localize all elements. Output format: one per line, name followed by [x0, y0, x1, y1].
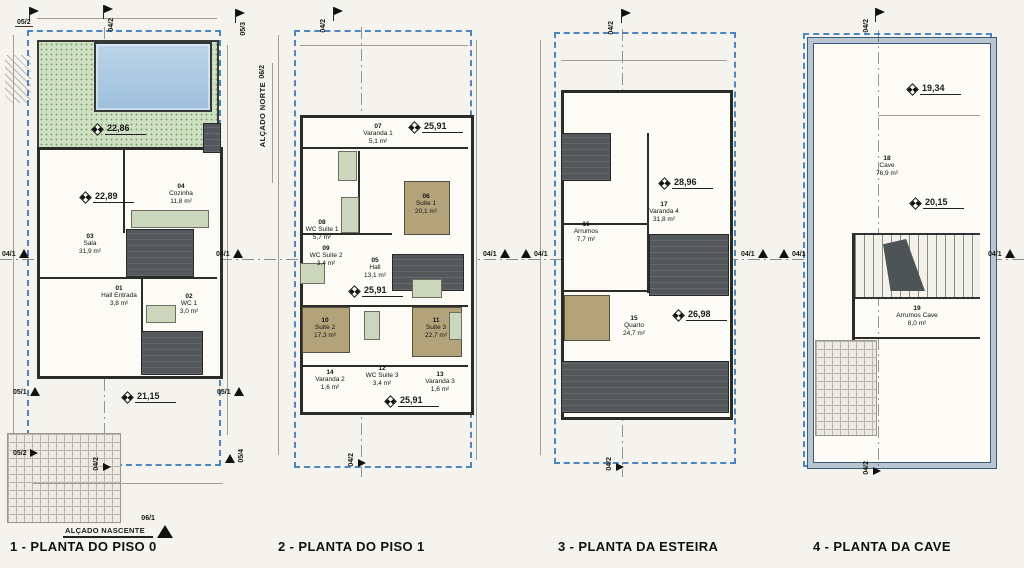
section-marker-04-2: 04/2 — [93, 457, 111, 471]
section-marker-04-2: 04/2 — [863, 461, 881, 475]
level-marker: 28,96 — [660, 177, 713, 189]
room-name: Cozinha — [169, 190, 193, 197]
triangle-icon — [873, 467, 881, 475]
section-ref: 04/1 — [216, 251, 230, 258]
dimension-line — [13, 35, 14, 435]
ref-04-2: 04/2 — [108, 18, 115, 32]
room-number: 10 — [321, 317, 328, 324]
level-value: 26,98 — [686, 309, 727, 321]
room-number: 09 — [322, 245, 329, 252]
level-value: 19,34 — [920, 83, 961, 95]
room-area: 1,6 m² — [431, 386, 449, 393]
elevation-ref: 06/1 — [141, 515, 155, 522]
room-label-varanda-4: 17 Varanda 4 31,8 m² — [636, 201, 692, 223]
gray-block — [561, 133, 611, 181]
plan-title: 3 - PLANTA DA ESTEIRA — [558, 539, 718, 554]
section-ref: 04/1 — [2, 251, 16, 258]
triangle-icon — [30, 449, 38, 457]
room-area: 5,1 m² — [369, 138, 387, 145]
benchmark-icon — [672, 309, 685, 322]
dimension-line — [37, 18, 217, 19]
wet-room — [338, 151, 357, 181]
elevation-line — [272, 63, 273, 183]
alcado-nascente-label: 06/1 ALÇADO NASCENTE — [63, 507, 173, 538]
room-name: Varanda 3 — [425, 378, 455, 385]
plan-title: 2 - PLANTA DO PISO 1 — [278, 539, 425, 554]
triangle-icon — [758, 249, 768, 258]
plan-piso-1: 06/2 ALÇADO NORTE 07 Varanda 1 5,1 m² 08 — [258, 5, 493, 563]
triangle-icon — [358, 459, 366, 467]
room-number: 01 — [115, 285, 122, 292]
room-number: 11 — [433, 317, 440, 324]
level-value: 21,15 — [135, 391, 176, 403]
room-label-suite-3: 11 Suite 3 22,7 m² — [412, 317, 460, 339]
room-label-wc-suite-3: 12 WC Suite 3 3,4 m² — [356, 365, 408, 387]
room-name: Suite 2 — [315, 324, 335, 331]
room-name: WC Suite 1 — [306, 226, 339, 233]
room-number: 18 — [883, 155, 890, 162]
section-ref: 05/1 — [13, 389, 27, 396]
section-ref: 04/2 — [863, 461, 870, 475]
room-number: 19 — [913, 305, 920, 312]
room-area: 22,7 m² — [425, 332, 447, 339]
room-label-wc-suite-1: 08 WC Suite 1 5,7 m² — [296, 219, 348, 241]
section-ref: 04/1 — [483, 251, 497, 258]
room-name: Cave — [879, 162, 894, 169]
room-label-hall: 05 Hall 13,1 m² — [352, 257, 398, 279]
room-label-suite-2: 10 Suite 2 17,3 m² — [302, 317, 348, 339]
wall-line — [123, 147, 125, 233]
wall-line — [561, 290, 649, 292]
room-area: 3,4 m² — [373, 380, 391, 387]
room-label-hall-entrada: 01 Hall Entrada 3,8 m² — [87, 285, 151, 307]
section-marker-04-1: 04/1 — [988, 249, 1015, 258]
flag-marker-icon — [333, 7, 334, 21]
dimension-line — [227, 45, 228, 435]
section-marker-04-1: 04/1 — [521, 249, 548, 258]
plan-cave: 18 Cave 76,9 m² 19 Arrumos Cave 8,0 m² 1… — [775, 5, 1024, 563]
section-ref: 05/4 — [238, 449, 245, 463]
section-marker-05-4: 05/4 — [225, 449, 245, 463]
room-number: 08 — [318, 219, 325, 226]
flag-marker-icon — [29, 7, 30, 21]
room-area: 76,9 m² — [876, 170, 898, 177]
kitchen-counter — [131, 210, 209, 228]
wall-line — [37, 277, 217, 279]
room-name: Varanda 4 — [649, 208, 679, 215]
ref-05-3: 05/3 — [240, 22, 247, 36]
room-number: 07 — [374, 123, 381, 130]
room-area: 3,4 m² — [317, 260, 335, 267]
triangle-icon — [1005, 249, 1015, 258]
triangle-icon — [521, 249, 531, 258]
room-name: WC Suite 3 — [366, 372, 399, 379]
room-label-suite-1: 06 Suite 1 20,1 m² — [404, 193, 448, 215]
plan-title: 4 - PLANTA DA CAVE — [813, 539, 951, 554]
room-label-wc-1: 02 WC 1 3,0 m² — [167, 293, 211, 315]
triangle-icon — [500, 249, 510, 258]
room-name: Quarto — [624, 322, 644, 329]
room-area: 24,7 m² — [623, 330, 645, 337]
section-ref: 04/2 — [93, 457, 100, 471]
wall-line — [300, 147, 468, 149]
benchmark-icon — [408, 121, 421, 134]
stair-block — [141, 331, 203, 375]
plan-piso-0: 03 Sala 31,9 m² 04 Cozinha 11,8 m² 01 Ha… — [5, 5, 255, 563]
level-marker: 22,89 — [81, 191, 134, 203]
level-marker: 26,98 — [674, 309, 727, 321]
benchmark-icon — [348, 285, 361, 298]
benchmark-icon — [121, 391, 134, 404]
room-label-quarto: 15 Quarto 24,7 m² — [610, 315, 658, 337]
dimension-line — [476, 40, 477, 460]
elevation-name: ALÇADO NASCENTE — [63, 526, 153, 538]
room-name: WC Suite 2 — [310, 252, 343, 259]
room-number: 15 — [630, 315, 637, 322]
dimension-line — [561, 60, 727, 61]
triangle-icon — [779, 249, 789, 258]
level-value: 25,91 — [422, 121, 463, 133]
room-number: 17 — [660, 201, 667, 208]
elevation-ref: 06/2 — [259, 65, 266, 79]
room-number: 05 — [371, 257, 378, 264]
room-name: Hall Entrada — [101, 292, 137, 299]
elevation-name: ALÇADO NORTE — [258, 82, 267, 147]
wet-room — [364, 311, 380, 340]
room-label-wc-suite-2: 09 WC Suite 2 3,4 m² — [300, 245, 352, 267]
section-marker-05-2: 05/2 — [13, 449, 38, 457]
section-marker-04-2: 04/2 — [348, 453, 366, 467]
triangle-icon — [234, 387, 244, 396]
section-marker-04-1: 04/1 — [741, 249, 768, 258]
triangle-icon — [19, 249, 29, 258]
triangle-icon — [616, 463, 624, 471]
level-marker: 25,91 — [410, 121, 463, 133]
room-label-arrumos: 16 Arrumos 7,7 m² — [562, 221, 610, 243]
swimming-pool — [94, 42, 212, 112]
room-name: Suite 1 — [416, 200, 436, 207]
ref-04-2: 04/2 — [320, 19, 327, 33]
room-name: Arrumos Cave — [896, 312, 938, 319]
section-ref: 04/2 — [606, 457, 613, 471]
room-area: 20,1 m² — [415, 208, 437, 215]
level-value: 20,15 — [923, 197, 964, 209]
room-label-varanda-3: 13 Varanda 3 1,6 m² — [414, 371, 466, 393]
room-name: WC 1 — [181, 300, 197, 307]
level-marker: 22,86 — [93, 123, 146, 135]
room-name: Varanda 2 — [315, 376, 345, 383]
room-area: 31,9 m² — [79, 248, 101, 255]
dimension-line — [278, 35, 279, 455]
section-marker-04-1: 04/1 — [483, 249, 510, 258]
stair-block — [126, 229, 194, 277]
room-label-cave: 18 Cave 76,9 m² — [859, 155, 915, 177]
room-label-arrumos-cave: 19 Arrumos Cave 8,0 m² — [867, 305, 967, 327]
stair-block — [649, 234, 729, 296]
benchmark-icon — [658, 177, 671, 190]
room-name: Hall — [369, 264, 380, 271]
section-marker-04-1: 04/1 — [2, 249, 29, 258]
room-number: 04 — [177, 183, 184, 190]
triangle-icon — [103, 463, 111, 471]
room-number: 12 — [378, 365, 385, 372]
room-area: 11,8 m² — [170, 198, 192, 205]
dimension-line — [540, 40, 541, 455]
benchmark-icon — [91, 123, 104, 136]
room-number: 16 — [582, 221, 589, 228]
alcado-norte-label: 06/2 ALÇADO NORTE — [258, 65, 267, 147]
flag-marker-icon — [235, 9, 236, 23]
section-ref: 05/1 — [217, 389, 231, 396]
room-name: Varanda 1 — [363, 130, 393, 137]
section-ref: 04/1 — [792, 251, 806, 258]
plan-title: 1 - PLANTA DO PISO 0 — [10, 539, 157, 554]
room-area: 17,3 m² — [314, 332, 336, 339]
triangle-icon — [225, 454, 235, 463]
section-ref: 04/1 — [741, 251, 755, 258]
benchmark-icon — [906, 83, 919, 96]
level-marker: 21,15 — [123, 391, 176, 403]
room-name: Arrumos — [574, 228, 599, 235]
room-number: 03 — [86, 233, 93, 240]
room-area: 3,8 m² — [110, 300, 128, 307]
level-marker: 20,15 — [911, 197, 964, 209]
flag-marker-icon — [621, 9, 622, 23]
tile-floor — [815, 340, 877, 436]
partition-line — [878, 115, 980, 116]
room-number: 06 — [422, 193, 429, 200]
level-marker: 25,91 — [350, 285, 403, 297]
level-marker: 25,91 — [386, 395, 439, 407]
room-area: 7,7 m² — [577, 236, 595, 243]
section-marker-05-1: 05/1 — [13, 387, 40, 396]
level-value: 28,96 — [672, 177, 713, 189]
roof-band — [561, 361, 729, 413]
plan-esteira: 17 Varanda 4 31,8 m² 16 Arrumos 7,7 m² 1… — [528, 5, 763, 563]
triangle-icon — [233, 249, 243, 258]
room-label-sala: 03 Sala 31,9 m² — [60, 233, 120, 255]
room-number: 02 — [185, 293, 192, 300]
triangle-icon — [30, 387, 40, 396]
level-value: 22,89 — [93, 191, 134, 203]
ref-04-2: 04/2 — [863, 19, 870, 33]
quarto-room — [564, 295, 610, 341]
level-value: 25,91 — [362, 285, 403, 297]
flag-marker-icon — [875, 8, 876, 22]
benchmark-icon — [384, 395, 397, 408]
level-value: 25,91 — [398, 395, 439, 407]
room-area: 8,0 m² — [908, 320, 926, 327]
room-label-varanda-1: 07 Varanda 1 5,1 m² — [350, 123, 406, 145]
room-area: 31,8 m² — [653, 216, 675, 223]
room-label-varanda-2: 14 Varanda 2 1,6 m² — [304, 369, 356, 391]
ref-04-2: 04/2 — [608, 21, 615, 35]
dimension-line — [33, 483, 223, 484]
wet-room — [412, 279, 442, 298]
section-marker-04-1: 04/1 — [216, 249, 243, 258]
section-marker-05-1: 05/1 — [217, 387, 244, 396]
gray-block — [203, 123, 221, 153]
room-area: 3,0 m² — [180, 308, 198, 315]
level-marker: 19,34 — [908, 83, 961, 95]
wall-line — [855, 337, 980, 339]
section-marker-04-1: 04/1 — [779, 249, 806, 258]
room-number: 13 — [436, 371, 443, 378]
section-ref: 04/1 — [534, 251, 548, 258]
section-ref: 04/1 — [988, 251, 1002, 258]
triangle-icon — [157, 525, 173, 538]
section-marker-04-2: 04/2 — [606, 457, 624, 471]
benchmark-icon — [79, 191, 92, 204]
room-label-cozinha: 04 Cozinha 11,8 m² — [153, 183, 209, 205]
flag-marker-icon — [103, 5, 104, 19]
room-area: 5,7 m² — [313, 234, 331, 241]
room-area: 1,6 m² — [321, 384, 339, 391]
drawing-sheet: 03 Sala 31,9 m² 04 Cozinha 11,8 m² 01 Ha… — [0, 0, 1024, 568]
section-ref: 05/2 — [13, 450, 27, 457]
dimension-line — [300, 45, 468, 46]
level-value: 22,86 — [105, 123, 146, 135]
room-name: Suite 3 — [426, 324, 446, 331]
room-number: 14 — [326, 369, 333, 376]
room-area: 13,1 m² — [364, 272, 386, 279]
room-name: Sala — [83, 240, 96, 247]
section-ref: 04/2 — [348, 453, 355, 467]
benchmark-icon — [909, 197, 922, 210]
